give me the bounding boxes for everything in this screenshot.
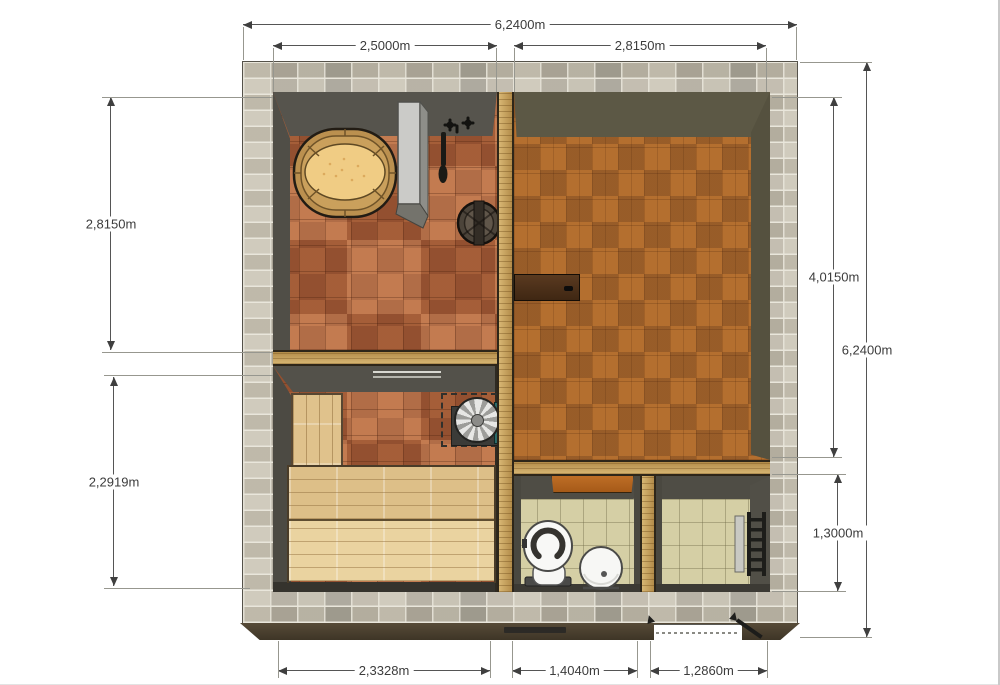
- dimension-label: 4,0150m: [805, 270, 864, 285]
- extension-line: [514, 48, 515, 92]
- extension-line: [102, 97, 273, 98]
- extension-line: [650, 641, 651, 678]
- entrance-opening: [654, 624, 742, 641]
- dimension-label: 6,2400m: [491, 17, 550, 32]
- dimension-label: 2,8150m: [611, 38, 670, 53]
- waste-bin: [574, 544, 628, 592]
- dimension-label: 2,8150m: [82, 216, 141, 231]
- dimension-label: 2,2919m: [85, 474, 144, 489]
- extension-line: [800, 62, 872, 63]
- extension-line: [104, 375, 273, 376]
- toilet: [517, 519, 581, 591]
- wall-face-left: [273, 92, 290, 350]
- shower-mixer: [433, 114, 477, 192]
- dimension-bottom-right: 1,2860m: [650, 670, 767, 671]
- room-rest: [514, 92, 770, 460]
- extension-line: [104, 588, 250, 589]
- partition-wall-rest-toilet: [514, 460, 770, 476]
- partition-wall-vertical: [497, 92, 514, 592]
- extension-line: [772, 97, 842, 98]
- wall-heater: [734, 510, 768, 578]
- extension-line: [772, 591, 846, 592]
- floor-plan-canvas: 6,2400m 2,5000m 2,8150m 2,8150m 2,2919m …: [0, 0, 1000, 685]
- rest-room-door: [514, 274, 580, 301]
- sauna-stove: [454, 397, 500, 443]
- dimension-bottom-left: 2,3328m: [278, 670, 490, 671]
- extension-line: [490, 641, 491, 678]
- room-sauna: [273, 366, 497, 592]
- extension-line: [766, 48, 767, 92]
- dimension-right-total: 6,2400m: [866, 62, 867, 637]
- dimension-label: 2,3328m: [355, 663, 414, 678]
- wooden-bucket: [455, 197, 503, 249]
- wall-face-right: [751, 92, 770, 460]
- dimension-left-upper: 2,8150m: [110, 97, 111, 350]
- wall-face-bottom: [656, 584, 770, 592]
- dimension-right-lower: 1,3000m: [837, 474, 838, 591]
- extension-line: [767, 641, 768, 678]
- dimension-label: 1,3000m: [809, 525, 868, 540]
- wall-face-left: [656, 476, 662, 592]
- sauna-bench-side: [291, 393, 343, 467]
- dimension-top-right-room: 2,8150m: [514, 45, 766, 46]
- wooden-tub: [292, 126, 400, 222]
- bench-upper-step: [289, 467, 494, 519]
- extension-line: [800, 637, 872, 638]
- dimension-label: 1,2860m: [679, 663, 738, 678]
- extension-line: [278, 641, 279, 678]
- dimension-top-left-room: 2,5000m: [273, 45, 497, 46]
- extension-line: [496, 48, 497, 92]
- wall-face-bottom: [273, 582, 495, 592]
- extension-line: [102, 352, 273, 353]
- bench-lower-step: [289, 519, 494, 581]
- dimension-label: 1,4040m: [545, 663, 604, 678]
- extension-line: [512, 641, 513, 678]
- extension-line: [637, 641, 638, 678]
- dimension-label: 2,5000m: [356, 38, 415, 53]
- dimension-right-inner: 4,0150m: [833, 97, 834, 457]
- extension-line: [273, 48, 274, 92]
- room-washing: [273, 92, 497, 350]
- privacy-screen: [395, 100, 435, 232]
- dimension-left-lower: 2,2919m: [113, 377, 114, 586]
- towel-rail: [373, 369, 441, 381]
- dimension-top-total: 6,2400m: [243, 24, 797, 25]
- room-toilet: [514, 476, 640, 592]
- extension-line: [772, 474, 846, 475]
- wall-face-top: [514, 92, 770, 137]
- bottom-wall-vent: [504, 627, 566, 633]
- dimension-bottom-middle: 1,4040m: [512, 670, 637, 671]
- partition-wall-toilet-entry: [640, 476, 656, 592]
- sauna-bench-steps: [287, 465, 496, 583]
- extension-line: [796, 27, 797, 60]
- room-entry: [656, 476, 770, 592]
- partition-wall-washing-sauna: [273, 350, 497, 366]
- extension-line: [772, 457, 842, 458]
- extension-line: [243, 27, 244, 60]
- dimension-label: 6,2400m: [838, 342, 897, 357]
